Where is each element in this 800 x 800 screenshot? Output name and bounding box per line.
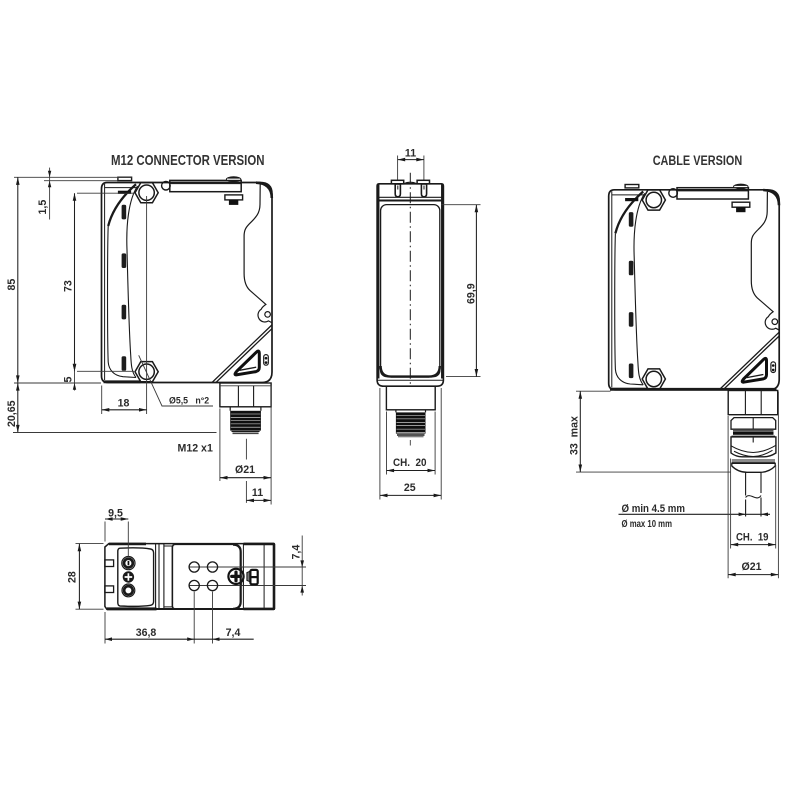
svg-text:5: 5 bbox=[63, 377, 75, 383]
svg-text:33 max: 33 max bbox=[569, 416, 581, 455]
svg-text:18: 18 bbox=[118, 398, 130, 410]
svg-text:36,8: 36,8 bbox=[136, 627, 157, 639]
svg-text:7,4: 7,4 bbox=[226, 627, 241, 639]
svg-text:11: 11 bbox=[252, 487, 263, 499]
svg-text:85: 85 bbox=[6, 279, 18, 291]
svg-text:CABLE VERSION: CABLE VERSION bbox=[653, 153, 743, 168]
svg-text:Ø21: Ø21 bbox=[741, 561, 761, 573]
svg-text:73: 73 bbox=[63, 280, 75, 292]
svg-text:Ø min 4.5 mm: Ø min 4.5 mm bbox=[622, 503, 686, 515]
svg-text:9,5: 9,5 bbox=[108, 508, 123, 520]
svg-text:20,65: 20,65 bbox=[6, 400, 18, 427]
svg-text:M12 x1: M12 x1 bbox=[178, 443, 213, 455]
svg-text:M12 CONNECTOR VERSION: M12 CONNECTOR VERSION bbox=[111, 152, 265, 169]
svg-text:28: 28 bbox=[67, 571, 79, 583]
svg-text:69,9: 69,9 bbox=[466, 283, 478, 304]
svg-text:1,5: 1,5 bbox=[37, 200, 49, 215]
svg-text:25: 25 bbox=[404, 482, 416, 494]
svg-text:CH. 20: CH. 20 bbox=[393, 457, 427, 469]
svg-text:CH. 19: CH. 19 bbox=[736, 532, 769, 544]
svg-text:Ø21: Ø21 bbox=[235, 464, 255, 476]
svg-text:11: 11 bbox=[405, 148, 416, 160]
svg-text:7,4: 7,4 bbox=[291, 545, 303, 560]
svg-text:Ø5,5 n°2: Ø5,5 n°2 bbox=[169, 396, 209, 406]
svg-text:Ø max 10 mm: Ø max 10 mm bbox=[622, 519, 673, 530]
